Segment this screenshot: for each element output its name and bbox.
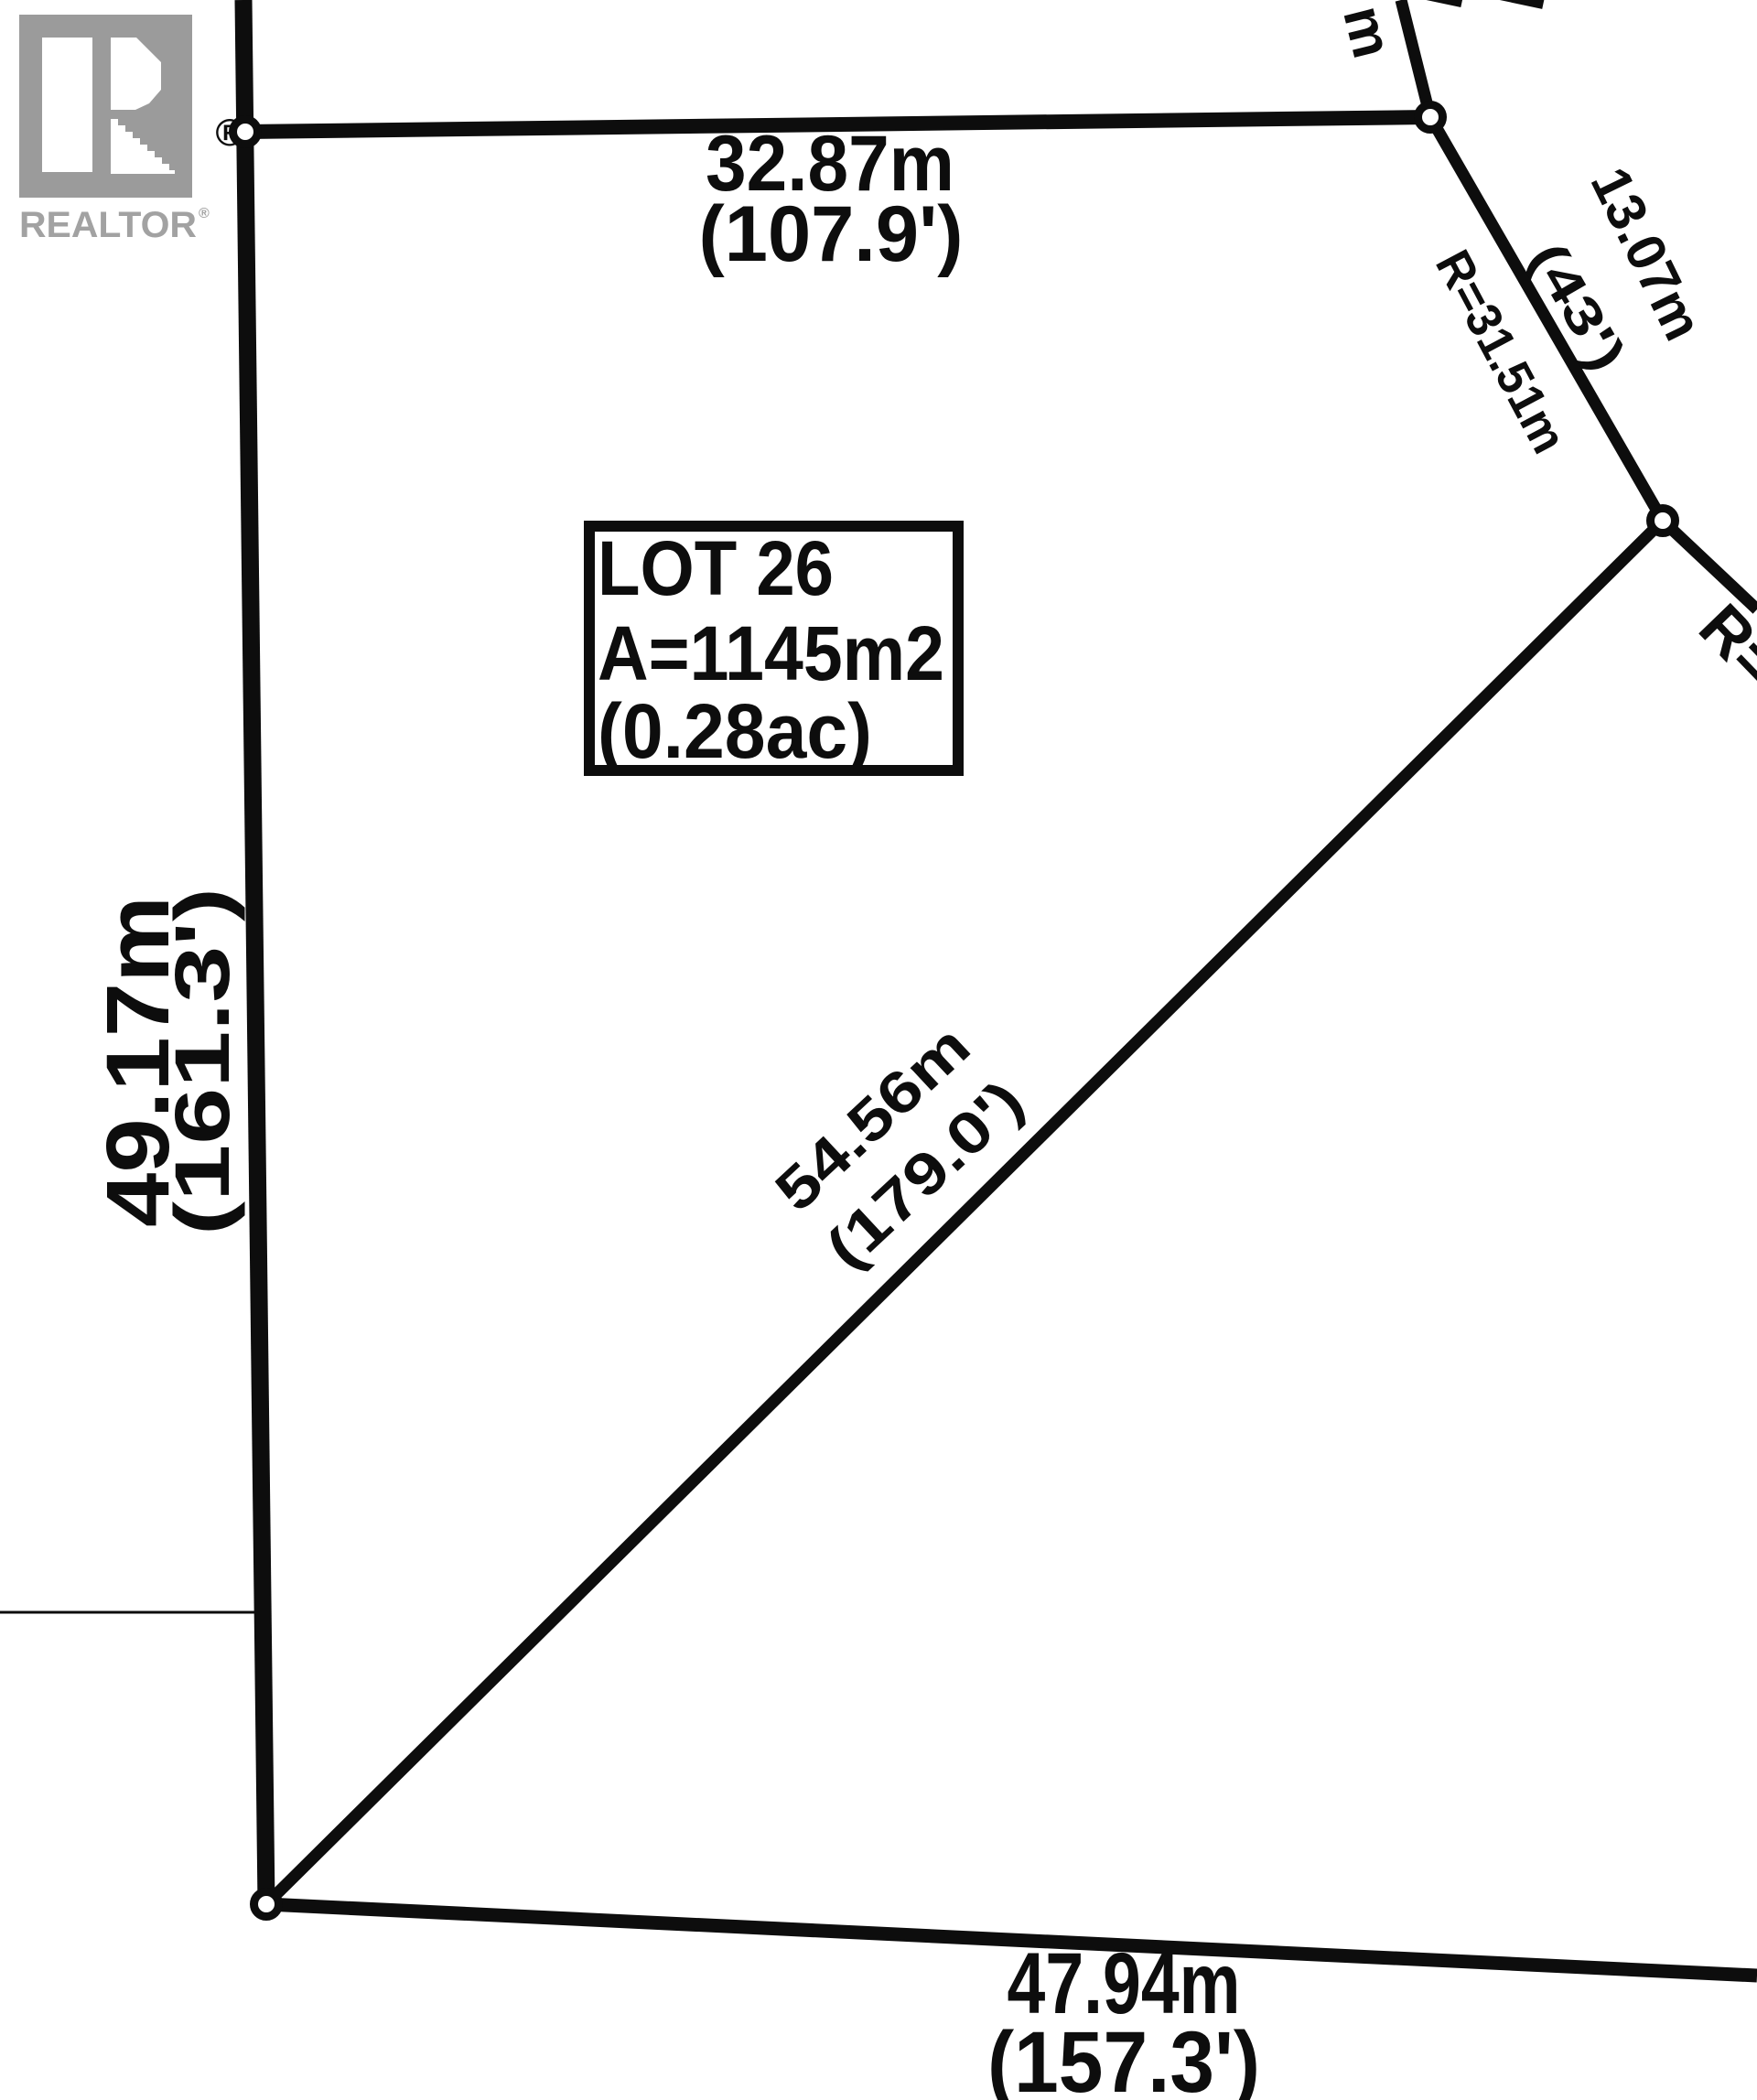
svg-text:(0.28ac): (0.28ac) [598, 688, 872, 774]
svg-text:(157.3'): (157.3') [987, 2014, 1260, 2100]
svg-text:®: ® [199, 206, 210, 221]
svg-text:(161.3'): (161.3') [159, 888, 245, 1235]
svg-text:LOT 26: LOT 26 [598, 525, 834, 611]
svg-text:A=1145m2: A=1145m2 [598, 610, 944, 696]
svg-text:REALTOR: REALTOR [19, 205, 197, 245]
svg-text:(107.9'): (107.9') [699, 190, 964, 278]
